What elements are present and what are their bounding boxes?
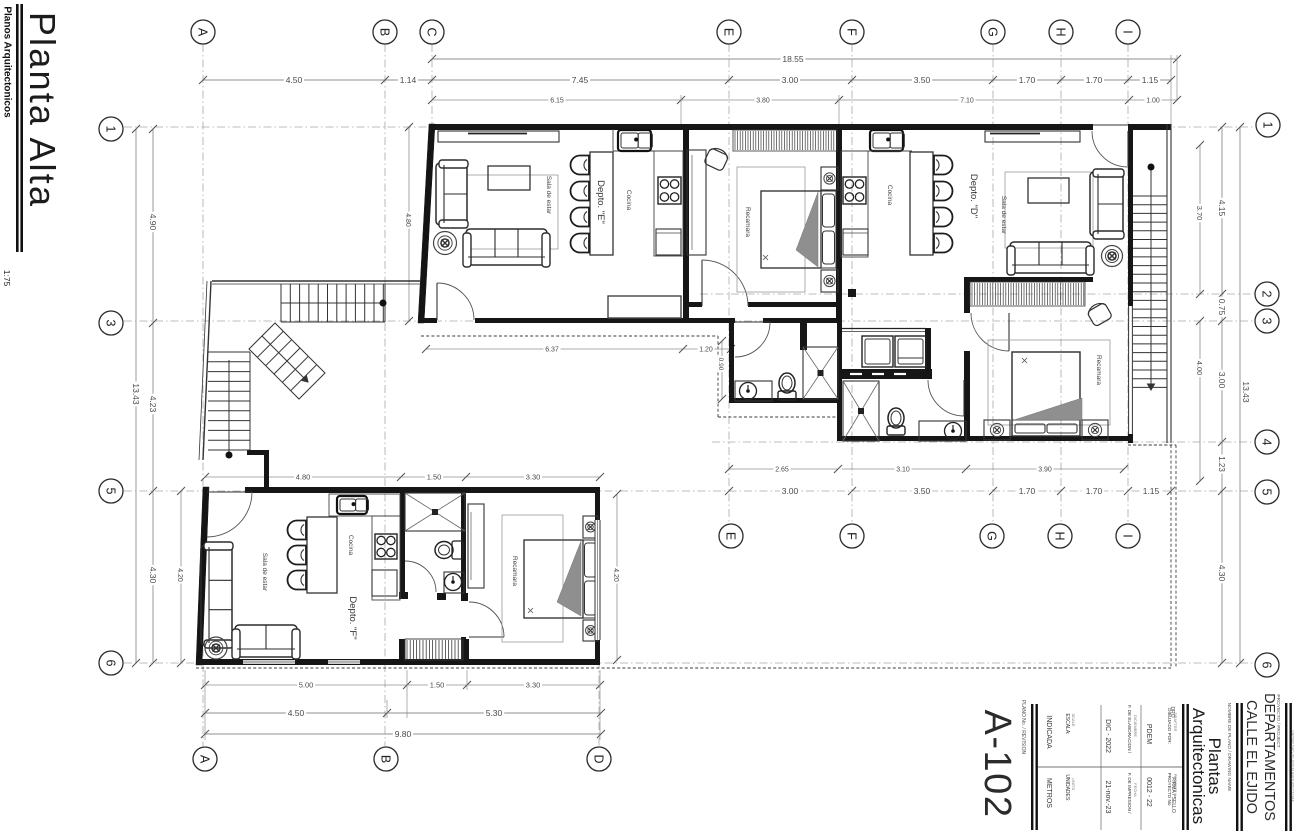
svg-text:Sala de estar: Sala de estar [261, 553, 268, 592]
svg-text:1.50: 1.50 [427, 473, 442, 482]
svg-text:FECHA: FECHA [1133, 783, 1138, 797]
svg-text:1.70: 1.70 [1019, 486, 1036, 496]
svg-text:1: 1 [1261, 122, 1275, 129]
svg-text:E: E [724, 532, 738, 540]
svg-text:3.50: 3.50 [914, 486, 931, 496]
svg-text:UNITS: UNITS [1071, 778, 1076, 790]
svg-text:C: C [425, 27, 439, 36]
svg-text:F: F [845, 532, 859, 540]
svg-text:5.00: 5.00 [299, 681, 314, 690]
svg-text:PROPIEDAD DE PDEM ARQUITECTURA: PROPIEDAD DE PDEM ARQUITECTURA [1291, 730, 1295, 802]
svg-text:Recamara: Recamara [744, 207, 751, 237]
svg-text:3: 3 [104, 320, 118, 327]
svg-text:1.14: 1.14 [400, 75, 417, 85]
svg-text:Recamara: Recamara [511, 556, 518, 586]
svg-text:1.50: 1.50 [430, 681, 445, 690]
svg-text:3.30: 3.30 [526, 681, 541, 690]
svg-text:Depto. "D": Depto. "D" [968, 174, 979, 218]
svg-text:B: B [378, 28, 392, 36]
svg-text:F: F [845, 28, 859, 36]
svg-text:6: 6 [1260, 662, 1274, 669]
svg-text:1.70: 1.70 [1086, 486, 1103, 496]
svg-text:H: H [1054, 27, 1068, 36]
svg-text:4: 4 [1260, 439, 1274, 446]
svg-text:DICIEMBRE: DICIEMBRE [1133, 715, 1138, 738]
svg-text:Cocina: Cocina [347, 535, 354, 556]
svg-text:3.90: 3.90 [1038, 466, 1052, 473]
svg-text:Cocina: Cocina [625, 190, 632, 211]
svg-text:0.90: 0.90 [717, 358, 724, 371]
svg-text:13.43: 13.43 [1241, 381, 1251, 403]
svg-text:4.50: 4.50 [288, 708, 305, 718]
svg-text:1:75: 1:75 [2, 270, 12, 287]
svg-text:18.55: 18.55 [782, 54, 804, 64]
svg-text:INDICADA: INDICADA [1045, 715, 1052, 749]
svg-text:METROS: METROS [1045, 778, 1052, 808]
svg-text:9.80: 9.80 [395, 729, 412, 739]
svg-text:1.70: 1.70 [1019, 75, 1036, 85]
svg-text:3.70: 3.70 [1195, 206, 1204, 221]
svg-text:4.20: 4.20 [612, 568, 619, 582]
svg-text:I: I [1121, 30, 1135, 33]
svg-text:E: E [722, 28, 736, 36]
svg-text:4.80: 4.80 [404, 213, 411, 227]
svg-text:6.15: 6.15 [550, 97, 564, 104]
svg-text:4.20: 4.20 [176, 568, 183, 582]
svg-text:H: H [1053, 531, 1067, 540]
svg-text:Planos Arquitectonicos: Planos Arquitectonicos [2, 6, 13, 118]
svg-text:Depto. "E": Depto. "E" [595, 180, 606, 224]
svg-text:7.45: 7.45 [572, 75, 589, 85]
svg-text:5: 5 [104, 488, 118, 495]
svg-text:DIC - 2022: DIC - 2022 [1104, 719, 1111, 753]
svg-text:Plantas: Plantas [1205, 738, 1224, 795]
svg-text:2: 2 [1260, 291, 1274, 298]
svg-text:5.30: 5.30 [486, 708, 503, 718]
svg-text:PLANO No. / REVISION: PLANO No. / REVISION [1020, 700, 1026, 755]
svg-text:21-nov.-23: 21-nov.-23 [1104, 781, 1111, 814]
svg-text:SCALE: SCALE [1071, 713, 1076, 726]
svg-text:0.75: 0.75 [1217, 299, 1227, 316]
svg-text:1.15: 1.15 [1142, 75, 1159, 85]
svg-text:13.43: 13.43 [131, 383, 141, 405]
svg-text:A: A [196, 28, 210, 37]
svg-text:Depto. "F": Depto. "F" [347, 596, 358, 639]
svg-text:1.15: 1.15 [1143, 486, 1160, 496]
svg-text:Sala de estar: Sala de estar [545, 176, 552, 215]
svg-text:PDEM: PDEM [1145, 724, 1152, 744]
svg-text:1.20: 1.20 [699, 346, 713, 353]
svg-text:4.00: 4.00 [1195, 361, 1204, 376]
svg-text:Planta Alta: Planta Alta [22, 12, 63, 208]
svg-text:4.80: 4.80 [296, 473, 311, 482]
svg-text:3.00: 3.00 [782, 75, 799, 85]
svg-text:FIRMA / SELLO: FIRMA / SELLO [1170, 777, 1176, 813]
svg-text:4.50: 4.50 [286, 75, 303, 85]
svg-text:A: A [198, 755, 212, 764]
svg-text:1.70: 1.70 [1086, 75, 1103, 85]
svg-text:6: 6 [104, 660, 118, 667]
svg-text:6.37: 6.37 [545, 346, 559, 353]
svg-text:G: G [985, 531, 999, 541]
svg-text:1.00: 1.00 [1146, 97, 1160, 104]
svg-text:A-102: A-102 [976, 710, 1018, 819]
svg-text:5: 5 [1260, 489, 1274, 496]
svg-text:Recamara: Recamara [1095, 355, 1102, 385]
svg-text:3.10: 3.10 [896, 466, 910, 473]
svg-text:CALLE EL EJIDO: CALLE EL EJIDO [1243, 700, 1259, 814]
svg-text:7.10: 7.10 [960, 97, 974, 104]
svg-text:DEPARTAMENTOS: DEPARTAMENTOS [1261, 693, 1277, 821]
svg-text:G: G [986, 27, 1000, 37]
svg-text:ESCALA:: ESCALA: [1064, 713, 1070, 734]
svg-text:4.90: 4.90 [148, 214, 158, 231]
svg-text:1: 1 [104, 126, 118, 133]
svg-text:4.15: 4.15 [1217, 200, 1227, 217]
svg-text:2.65: 2.65 [775, 466, 789, 473]
svg-text:4.30: 4.30 [148, 567, 158, 584]
svg-text:3.00: 3.00 [782, 486, 799, 496]
svg-text:D: D [592, 754, 606, 763]
svg-text:UNIDADES:: UNIDADES: [1064, 774, 1070, 801]
svg-text:NOMBRE DE PLANO / DRAWING NAME: NOMBRE DE PLANO / DRAWING NAME [1226, 703, 1232, 792]
svg-text:1.23: 1.23 [1217, 456, 1226, 472]
svg-text:3.50: 3.50 [914, 75, 931, 85]
svg-text:DRO: DRO [1169, 706, 1175, 717]
svg-text:3.80: 3.80 [756, 97, 770, 104]
svg-text:F. DE IMPRESION /: F. DE IMPRESION / [1127, 773, 1132, 815]
svg-text:4.23: 4.23 [148, 396, 158, 413]
svg-text:I: I [1121, 534, 1135, 537]
svg-text:4.30: 4.30 [1217, 565, 1227, 582]
svg-text:PROYECTO / PROJECT: PROYECTO / PROJECT [1275, 694, 1281, 747]
svg-text:0012 - 22: 0012 - 22 [1145, 777, 1152, 807]
svg-text:F. DE ELABORACION /: F. DE ELABORACION / [1127, 705, 1132, 754]
svg-text:Cocina: Cocina [886, 185, 893, 206]
svg-text:B: B [379, 755, 393, 763]
svg-text:3.30: 3.30 [526, 473, 541, 482]
svg-text:3.00: 3.00 [1217, 372, 1227, 389]
svg-text:3: 3 [1260, 318, 1274, 325]
svg-text:Sala de estar: Sala de estar [1000, 196, 1007, 235]
